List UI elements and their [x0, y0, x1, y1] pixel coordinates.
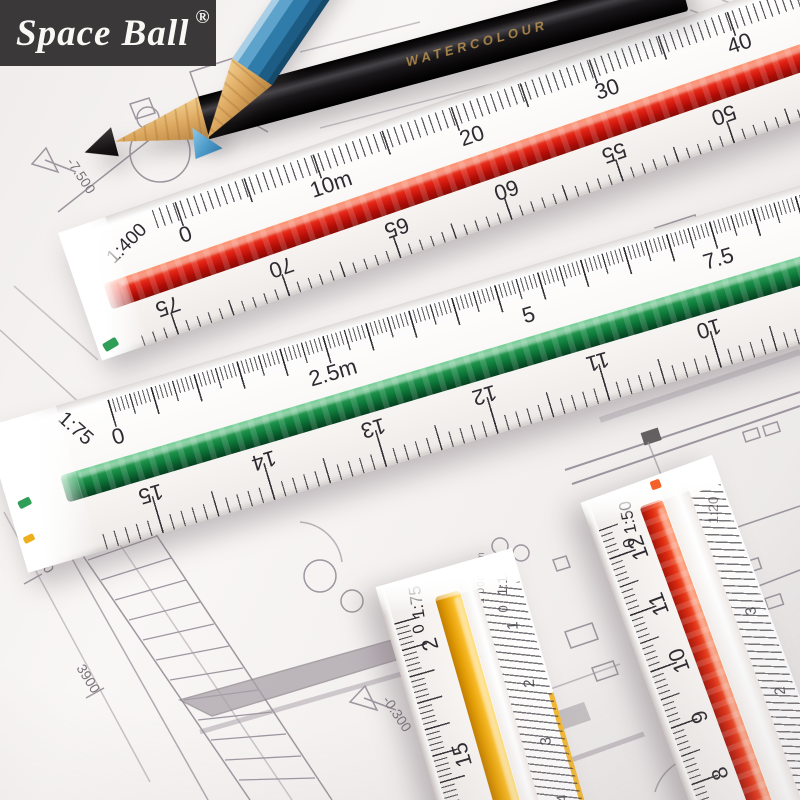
- green-strip-end: [17, 496, 32, 509]
- brand-banner: Space Ball ®: [0, 0, 216, 66]
- product-photo: -7.500 -0.300 3900 3900 0 10m 20 30 40 1…: [0, 0, 800, 800]
- scale-zero: 0: [109, 422, 128, 450]
- scale-number: 2: [521, 679, 539, 689]
- scale-number: 0: [175, 220, 195, 249]
- green-facet-sliver: [102, 337, 119, 352]
- scale-number: 3: [537, 736, 555, 746]
- scale-number: 1: [504, 621, 522, 631]
- side-scale-ratio-label: 1:20: [705, 496, 721, 523]
- brand-name: Space Ball: [16, 12, 189, 55]
- yellow-facet-sliver: [23, 533, 36, 544]
- scale-number: 4: [554, 794, 572, 800]
- red-strip-end: [649, 479, 661, 491]
- scale-number: 5: [519, 301, 538, 329]
- side-scale-zero: 0: [495, 605, 510, 612]
- registered-trademark-icon: ®: [195, 7, 209, 29]
